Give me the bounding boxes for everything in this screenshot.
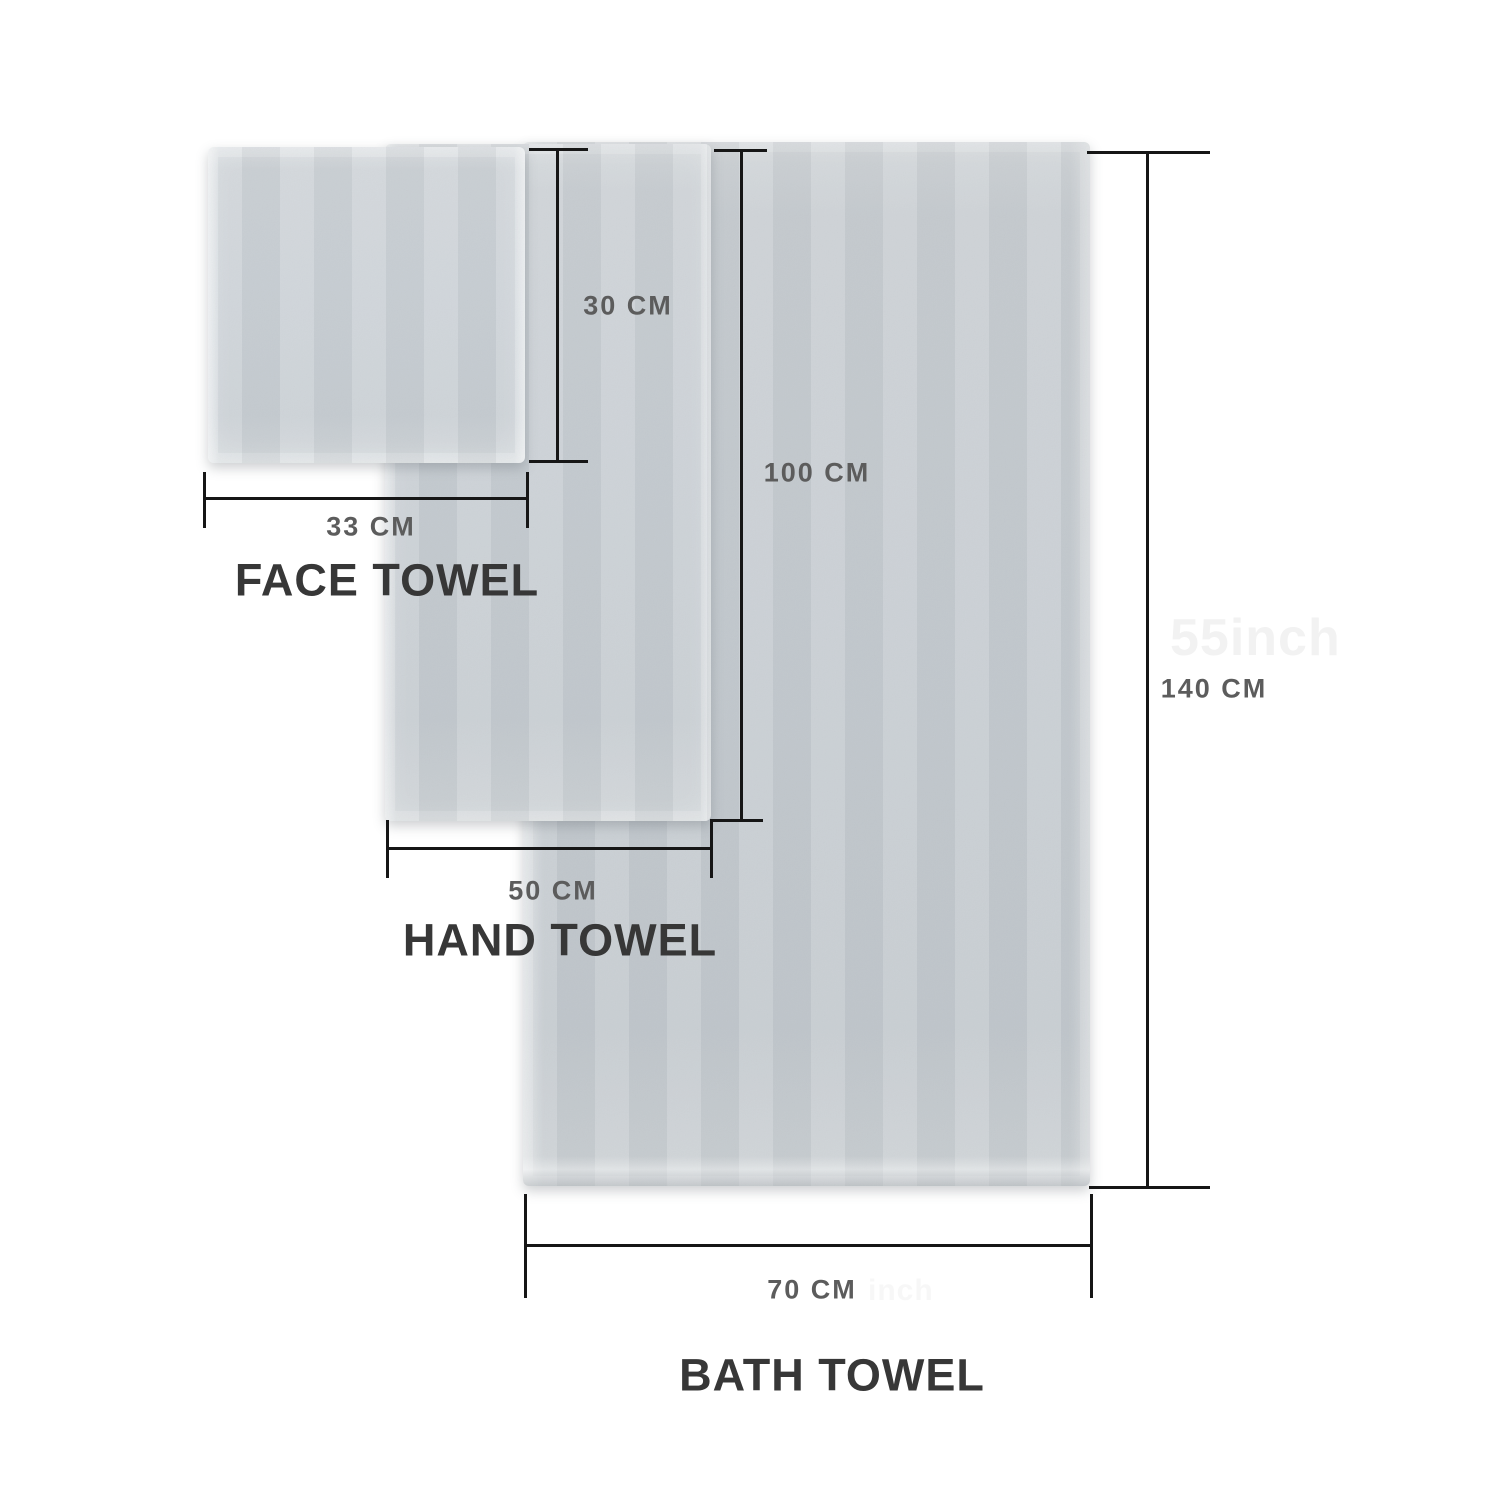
hand-height-dim-label: 100 CM bbox=[764, 460, 871, 487]
bath-towel-name-label: BATH TOWEL bbox=[679, 1353, 985, 1398]
hand-towel-name-label: HAND TOWEL bbox=[403, 918, 717, 963]
face-height-dim-tick-bottom bbox=[529, 460, 588, 463]
hand-width-dim-tick-left bbox=[386, 820, 389, 878]
bath-width-dim-tick-right bbox=[1090, 1194, 1093, 1298]
face-height-dim-tick-top bbox=[529, 148, 588, 151]
bath-width-dim-line bbox=[524, 1244, 1093, 1247]
bath-height-dim-line bbox=[1146, 152, 1149, 1188]
watermark-55inch: 55inch bbox=[1170, 612, 1341, 664]
bath-height-dim-tick-bottom bbox=[1089, 1186, 1210, 1189]
face-width-dim-label: 33 CM bbox=[326, 514, 416, 541]
face-width-dim-line bbox=[204, 497, 529, 500]
hand-width-dim-line bbox=[386, 847, 713, 850]
watermark-inch: inch bbox=[868, 1276, 934, 1306]
face-towel-image bbox=[208, 147, 525, 463]
bath-height-dim-tick-top bbox=[1087, 151, 1210, 154]
towel-size-diagram: 55inch inch 30 CM 33 CM FACE TOWEL 100 C… bbox=[0, 0, 1500, 1500]
bath-height-dim-label: 140 CM bbox=[1161, 676, 1268, 703]
hand-width-dim-label: 50 CM bbox=[508, 878, 598, 905]
hand-height-dim-tick-top bbox=[714, 149, 767, 152]
bath-width-dim-label: 70 CM bbox=[767, 1277, 857, 1304]
face-width-dim-tick-right bbox=[526, 472, 529, 528]
hand-height-dim-tick-bottom bbox=[710, 819, 763, 822]
face-width-dim-tick-left bbox=[203, 472, 206, 528]
face-height-dim-label: 30 CM bbox=[583, 293, 673, 320]
bath-width-dim-tick-left bbox=[524, 1194, 527, 1298]
face-towel-name-label: FACE TOWEL bbox=[235, 558, 539, 603]
towel-texture bbox=[208, 147, 525, 463]
hand-height-dim-line bbox=[740, 150, 743, 821]
hand-width-dim-tick-right bbox=[710, 820, 713, 878]
face-height-dim-line bbox=[556, 149, 559, 463]
